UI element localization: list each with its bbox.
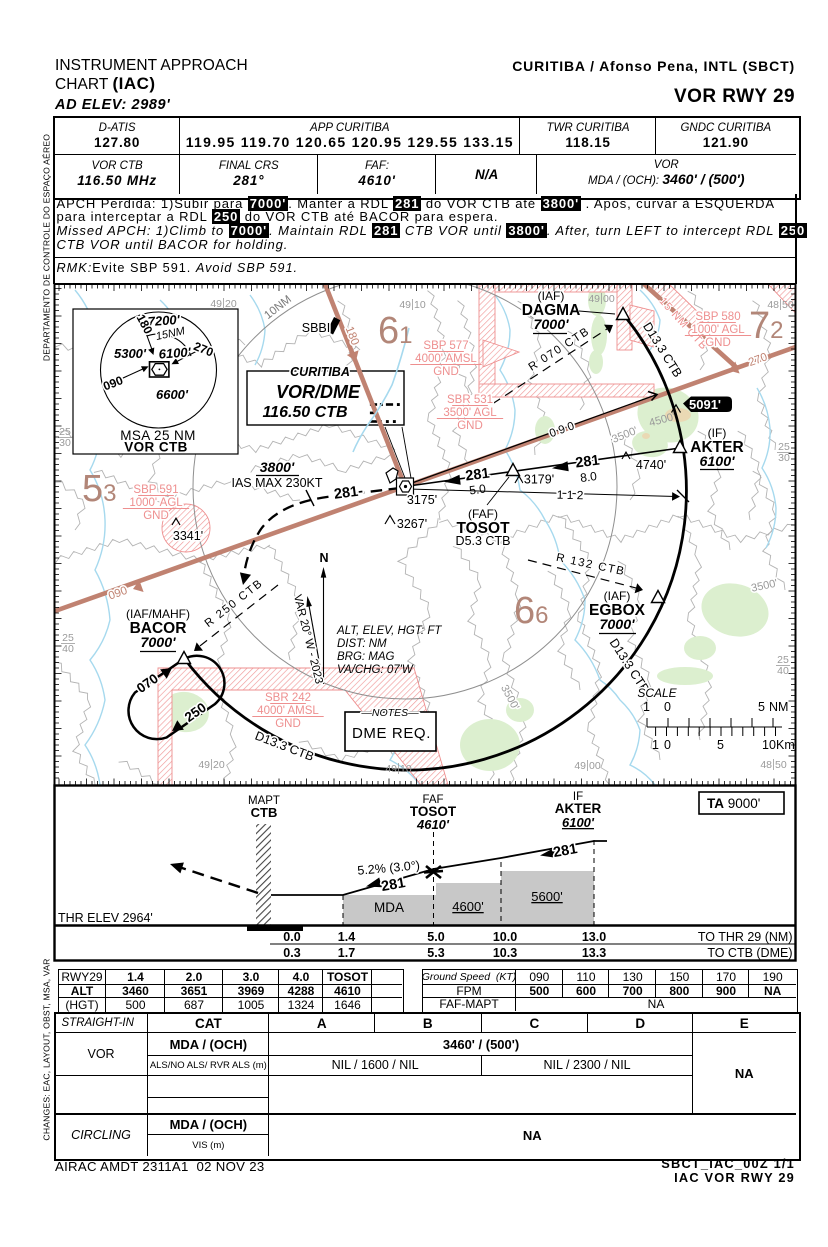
svg-text:4600': 4600' [452, 899, 483, 914]
svg-text:10.3: 10.3 [493, 946, 517, 960]
svg-text:AKTER: AKTER [555, 801, 602, 816]
svg-text:5.0: 5.0 [427, 930, 444, 944]
svg-text:TA 9000': TA 9000' [707, 796, 760, 811]
svg-text:10.0: 10.0 [493, 930, 517, 944]
svg-text:5600': 5600' [531, 889, 562, 904]
svg-text:5.3: 5.3 [427, 946, 444, 960]
svg-text:1.7: 1.7 [338, 946, 355, 960]
svg-text:6100': 6100' [562, 815, 595, 830]
svg-text:0.3: 0.3 [283, 946, 300, 960]
svg-text:TO THR 29 (NM): TO THR 29 (NM) [698, 930, 793, 944]
svg-text:13.0: 13.0 [582, 930, 606, 944]
svg-text:4610': 4610' [416, 817, 450, 832]
svg-text:0.0: 0.0 [283, 930, 300, 944]
svg-text:1.4: 1.4 [338, 930, 355, 944]
svg-text:13.3: 13.3 [582, 946, 606, 960]
svg-text:MDA: MDA [374, 900, 404, 915]
svg-text:CTB: CTB [251, 805, 278, 820]
svg-text:THR ELEV 2964': THR ELEV 2964' [58, 911, 153, 925]
svg-text:TO CTB (DME): TO CTB (DME) [707, 946, 792, 960]
